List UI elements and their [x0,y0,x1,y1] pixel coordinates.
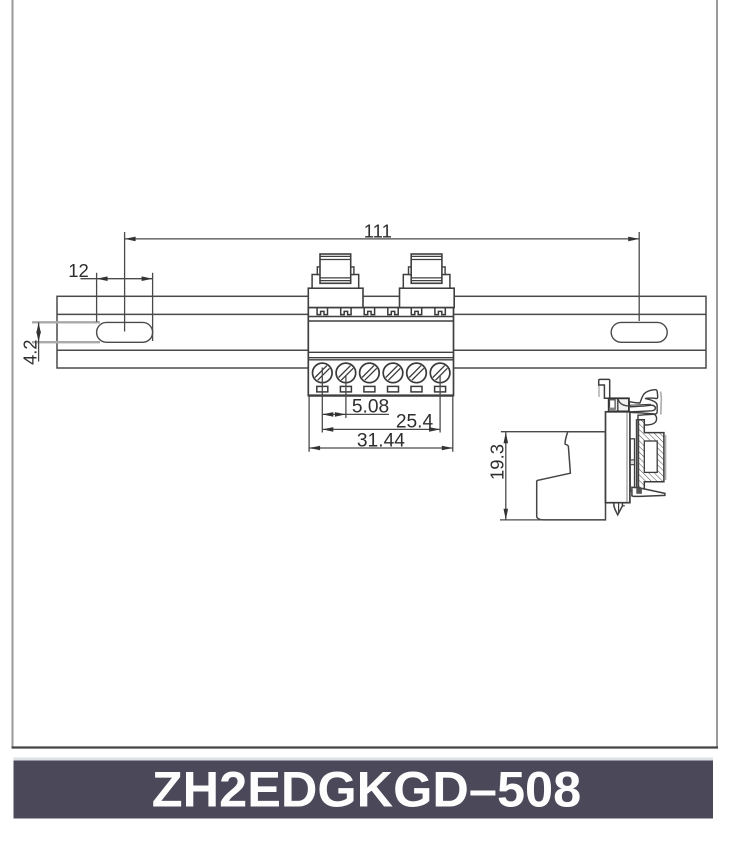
svg-text:19.3: 19.3 [486,444,507,480]
svg-text:31.44: 31.44 [357,431,405,452]
svg-text:111: 111 [364,220,392,241]
svg-text:12: 12 [68,260,89,281]
svg-text:ZH2EDGKGD–508: ZH2EDGKGD–508 [152,760,581,817]
svg-text:4.2: 4.2 [20,340,40,365]
svg-text:5.08: 5.08 [352,396,389,417]
